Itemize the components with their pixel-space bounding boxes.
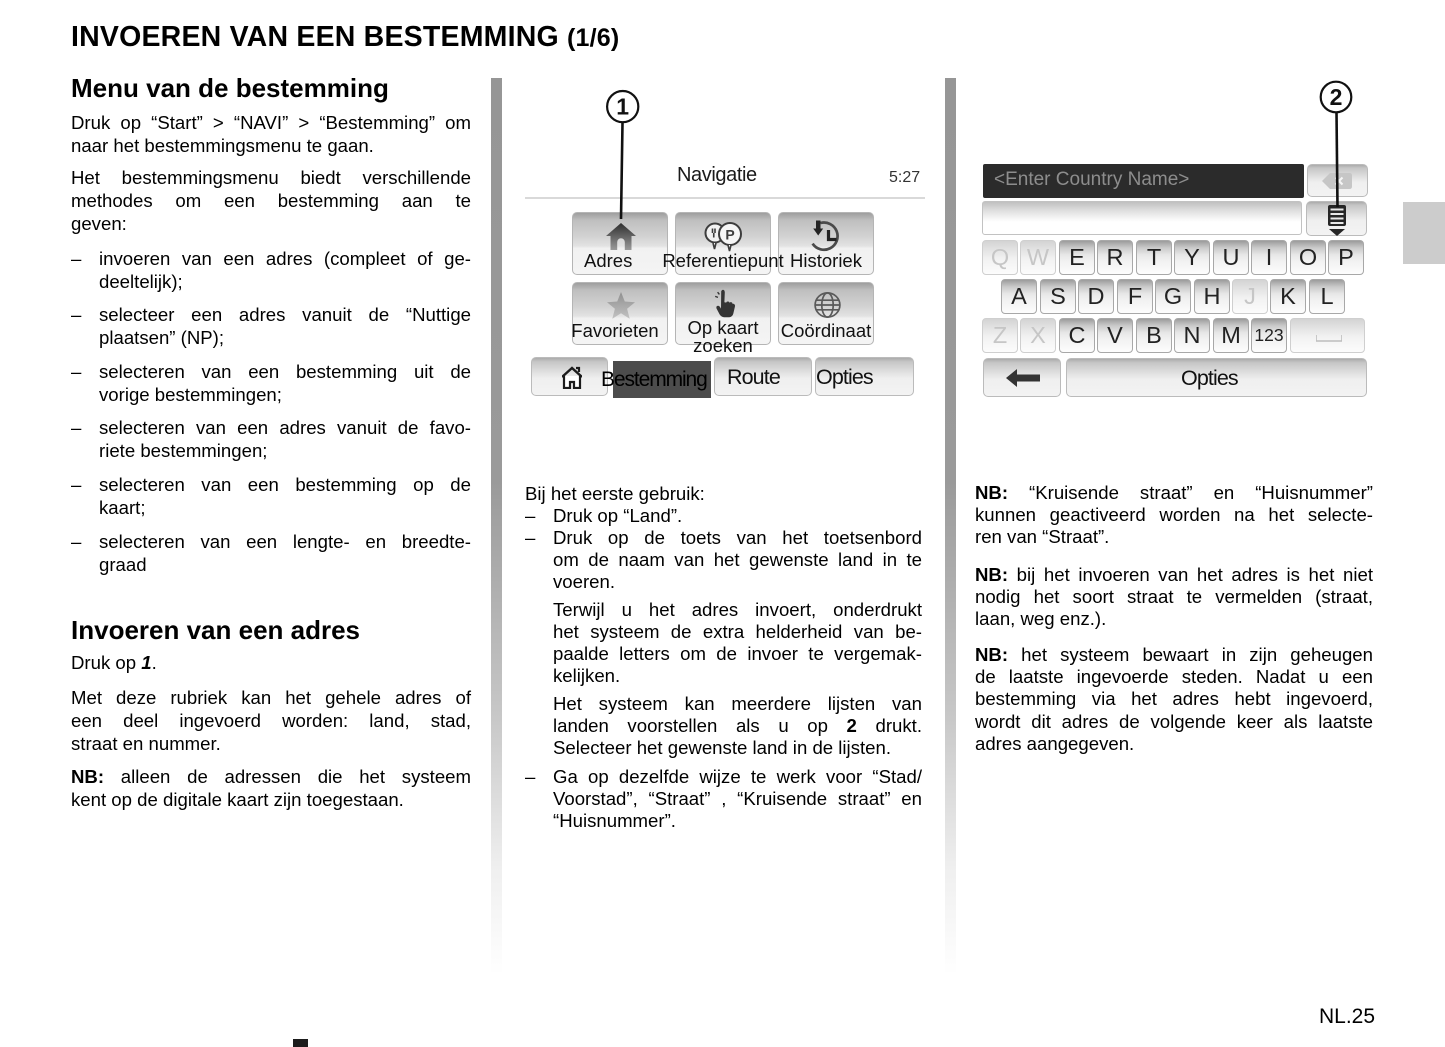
svg-text:2: 2	[1330, 84, 1343, 110]
svg-text:P: P	[725, 226, 734, 242]
svg-text:1: 1	[616, 94, 629, 120]
